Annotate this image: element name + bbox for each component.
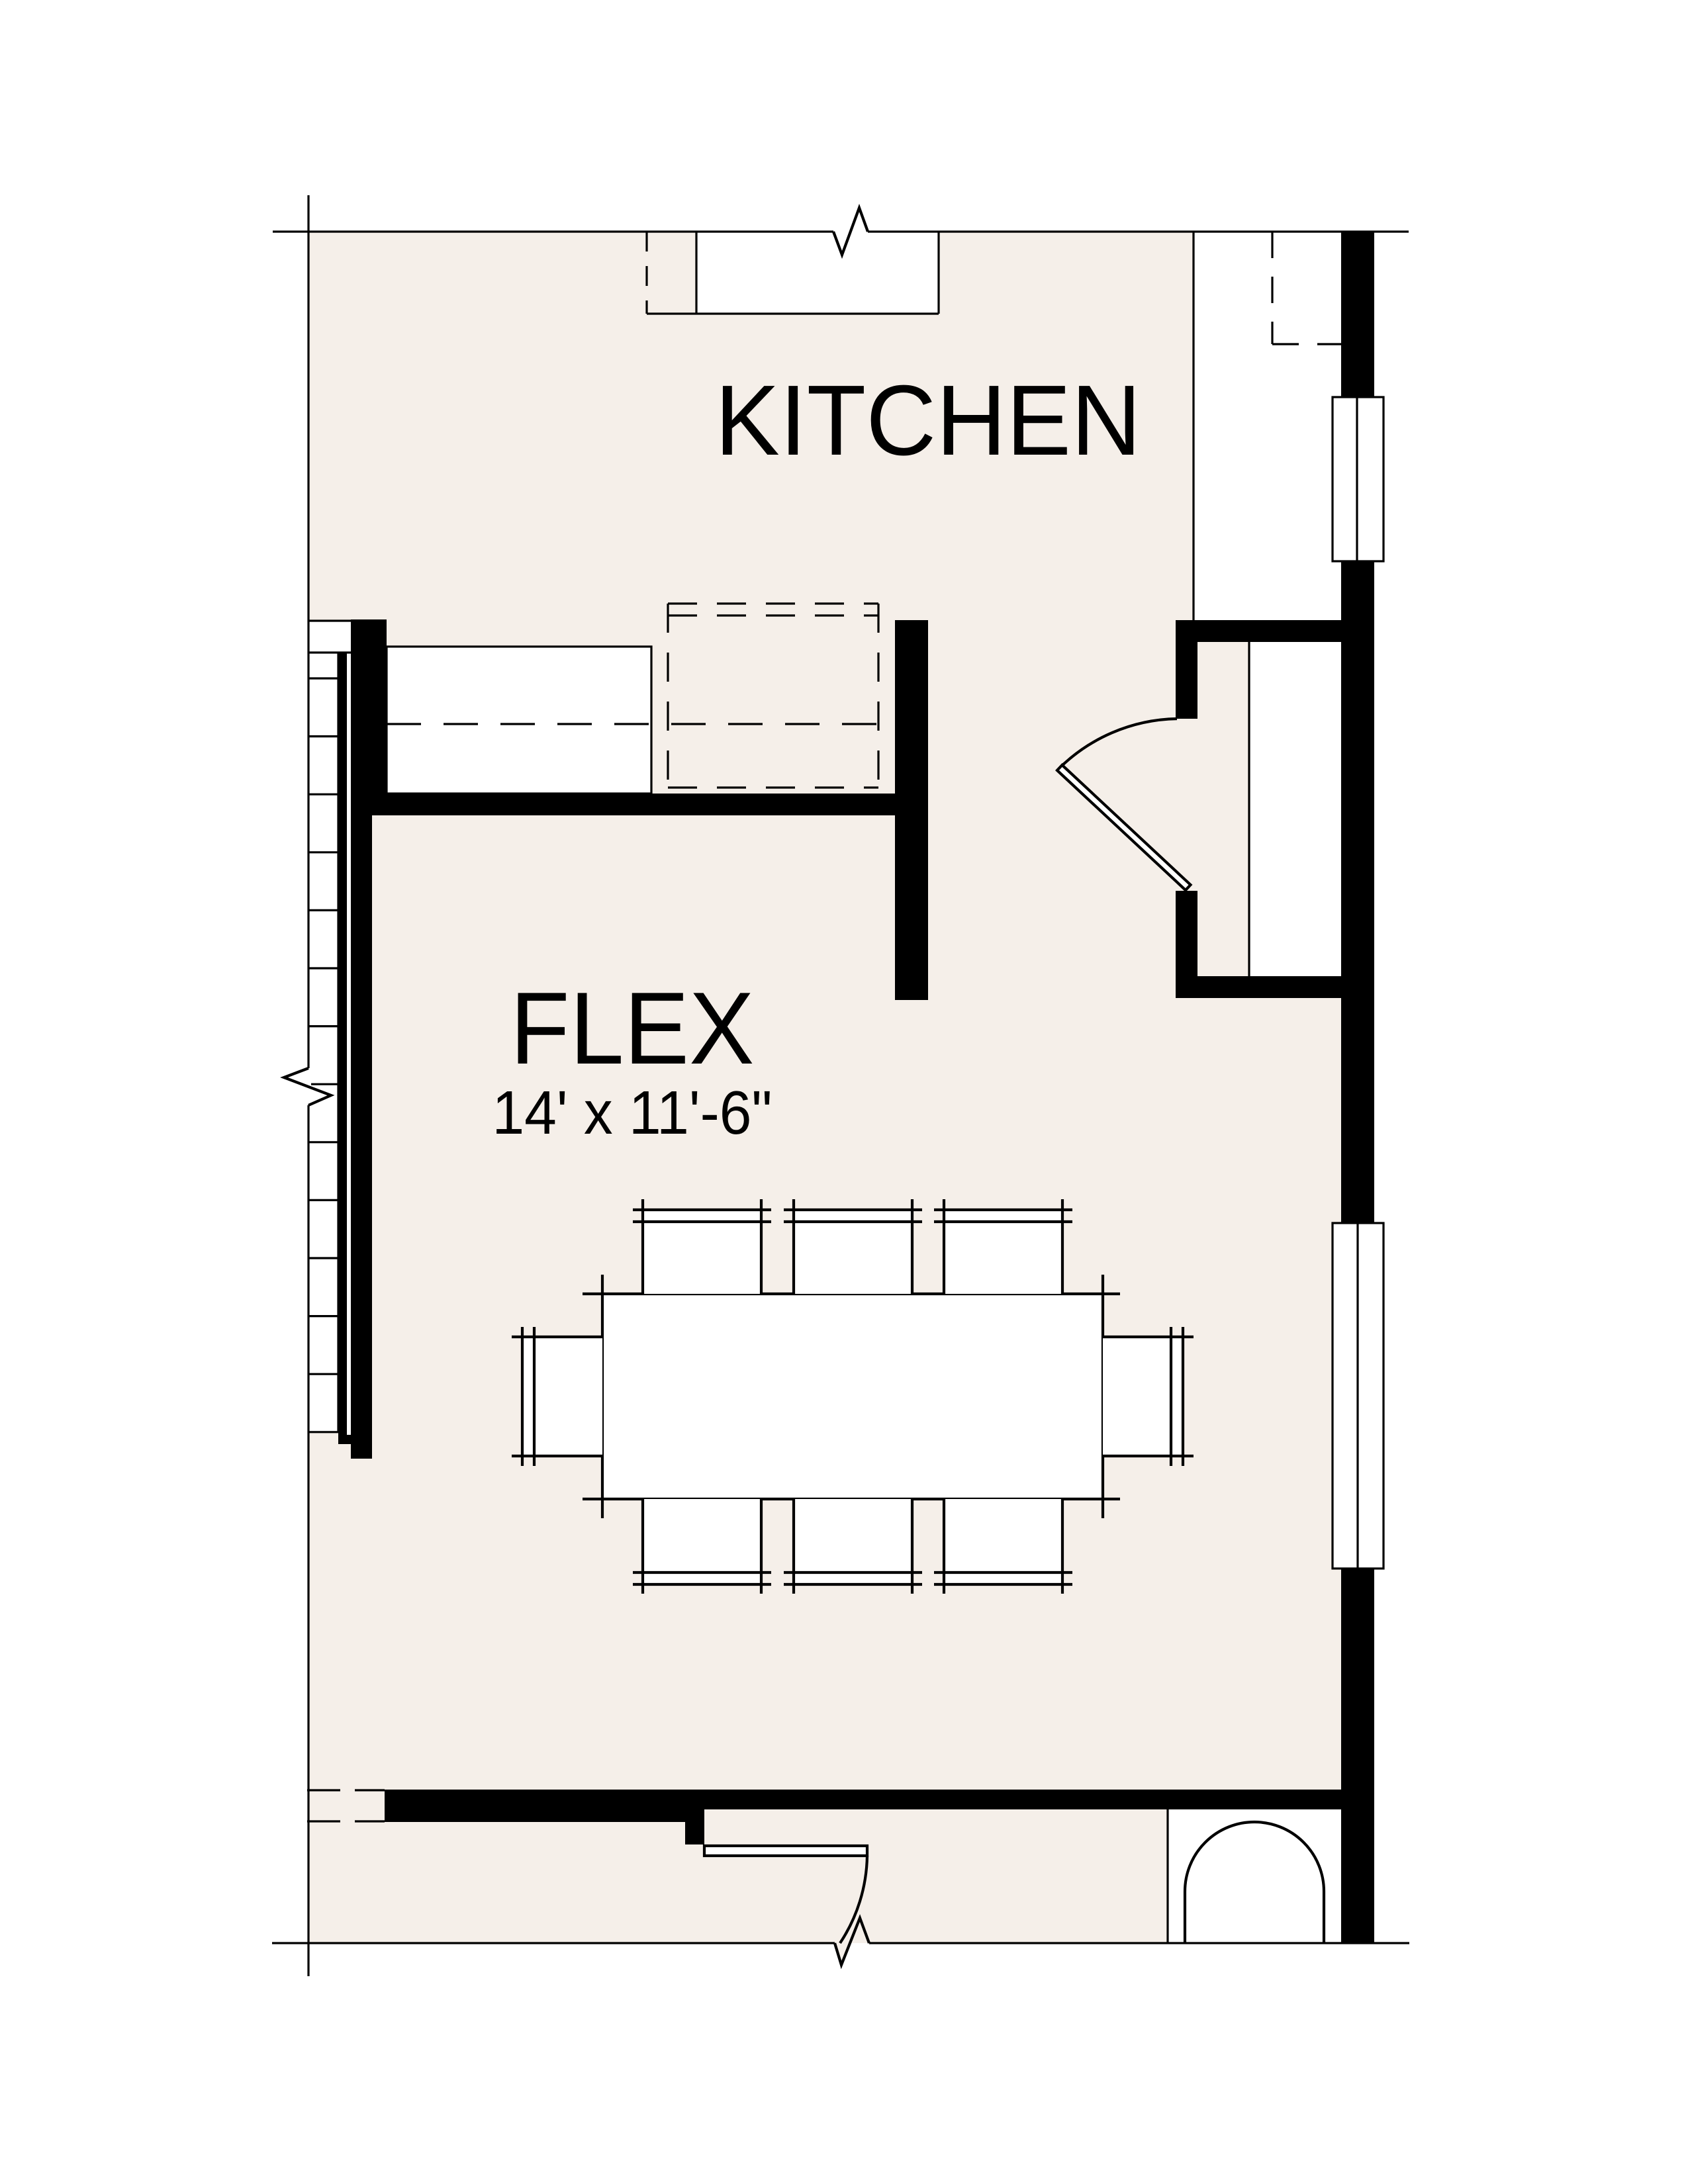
svg-text:KITCHEN: KITCHEN: [715, 364, 1141, 476]
svg-text:FLEX: FLEX: [510, 971, 755, 1085]
svg-text:14' x 11'-6": 14' x 11'-6": [492, 1078, 773, 1147]
